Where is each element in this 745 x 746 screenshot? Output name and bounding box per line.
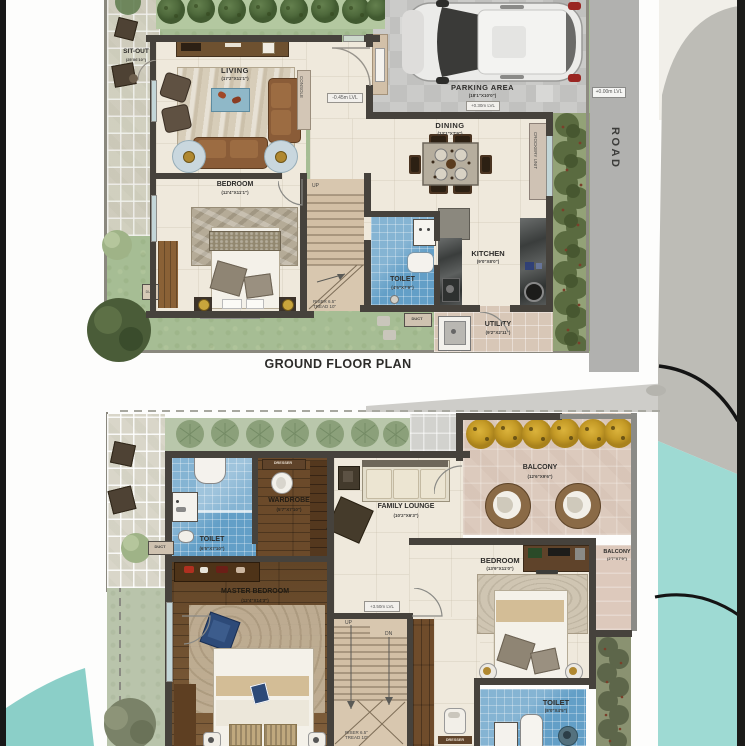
svg-text:DN: DN — [385, 631, 393, 637]
svg-text:TREAD 10": TREAD 10" — [313, 304, 337, 309]
svg-text:UP: UP — [312, 183, 320, 189]
svg-text:TREAD 10": TREAD 10" — [345, 735, 369, 740]
